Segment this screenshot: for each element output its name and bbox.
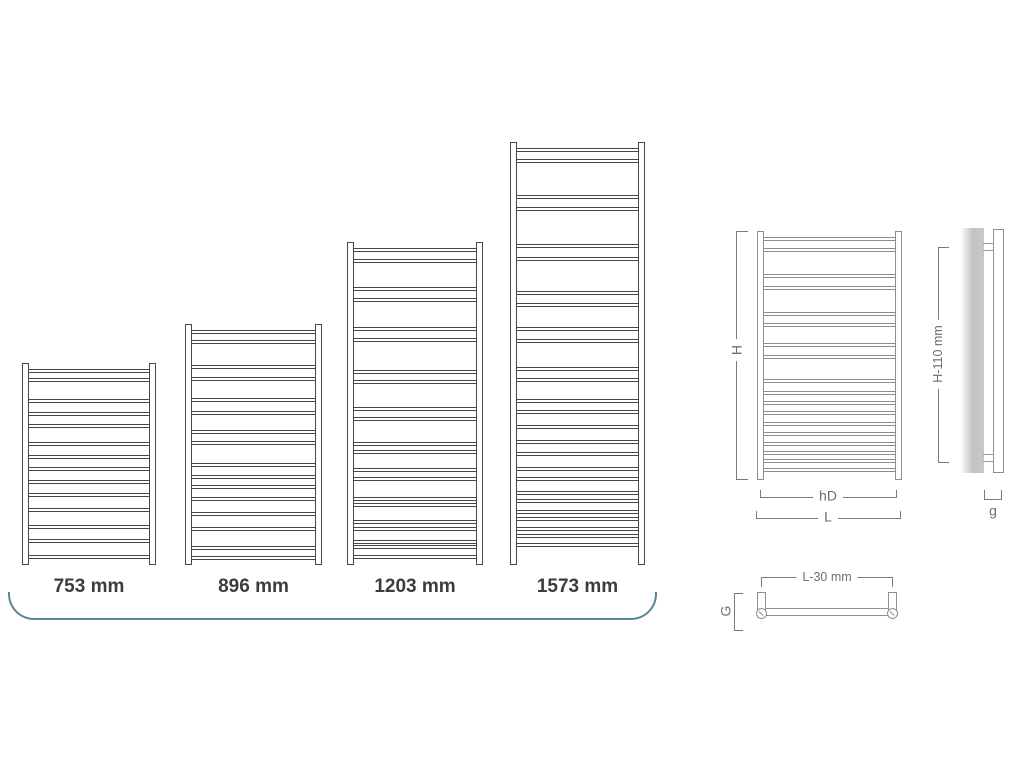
radiator-tube-right (149, 363, 156, 565)
radiator-rung (763, 411, 896, 415)
side-view-tube (993, 229, 1004, 473)
radiator-rung (516, 257, 639, 261)
radiator-rung (28, 555, 150, 559)
mounting-height-label: H-110 mm (932, 319, 946, 388)
radiator-rung (353, 248, 477, 252)
radiator-rung (516, 291, 639, 295)
radiator-rung (353, 338, 477, 342)
wall-gap-bracket (984, 490, 1002, 500)
radiator-rung (28, 378, 150, 382)
wall-bracket-bottom (983, 454, 994, 462)
radiator-rung (763, 237, 896, 241)
radiator-rung (516, 491, 639, 495)
radiator-tube-right (476, 242, 483, 565)
radiator-rung (516, 410, 639, 414)
radiator-rung (191, 556, 316, 560)
radiator-tube-left (22, 363, 29, 565)
radiator-rung (763, 459, 896, 463)
top-view-right-fitting (887, 608, 898, 619)
radiator-rung (191, 377, 316, 381)
radiator-rung (763, 391, 896, 395)
radiator-rung (763, 442, 896, 446)
radiator-rung (763, 451, 896, 455)
radiator-rung (353, 503, 477, 507)
top-view-tube (757, 608, 897, 616)
radiator-rung (516, 148, 639, 152)
radiator-rung (516, 244, 639, 248)
radiator-rung (763, 312, 896, 316)
radiator-rung (763, 432, 896, 436)
radiator-rung (516, 303, 639, 307)
radiator-rung (516, 339, 639, 343)
radiator-tube-right (638, 142, 645, 565)
radiator-rung (353, 540, 477, 544)
radiator-rung (763, 274, 896, 278)
radiator-rung (516, 159, 639, 163)
wall-surface (960, 228, 984, 473)
radiator-tube-right (315, 324, 322, 565)
radiator-rung (191, 463, 316, 467)
radiator-figure-753 (22, 363, 156, 565)
radiator-rung (516, 425, 639, 429)
radiator-rung (28, 467, 150, 471)
radiator-rung (763, 468, 896, 472)
radiator-rung (191, 330, 316, 334)
radiator-rung (191, 398, 316, 402)
radiator-rung (353, 555, 477, 559)
radiator-rung (28, 412, 150, 416)
radiator-rung (763, 401, 896, 405)
radiator-rung (28, 399, 150, 403)
width-dimension-label: L (818, 509, 838, 524)
radiator-rung (28, 525, 150, 529)
radiator-rung (516, 510, 639, 514)
radiator-rung (353, 417, 477, 421)
radiator-rung (353, 370, 477, 374)
radiator-rung (28, 455, 150, 459)
radiator-rung (353, 545, 477, 549)
hub-distance-label: hD (813, 488, 843, 503)
radiator-rung (191, 441, 316, 445)
radiator-rung (191, 475, 316, 479)
radiator-rung (191, 546, 316, 550)
radiator-tube-right (895, 231, 902, 480)
radiator-dimension-diagram: 753 mm 896 mm 1203 mm 1573 mm H hD L H-1… (0, 0, 1024, 768)
radiator-rung (28, 493, 150, 497)
radiator-figure-1203 (347, 242, 483, 565)
radiator-rung (516, 399, 639, 403)
wall-bracket-top (983, 243, 994, 251)
radiator-rung (353, 527, 477, 531)
radiator-rung (763, 248, 896, 252)
radiator-rung (516, 452, 639, 456)
radiator-rung (763, 379, 896, 383)
radiator-rung (353, 407, 477, 411)
radiator-rung (763, 323, 896, 327)
radiator-rung (516, 327, 639, 331)
radiator-rung (763, 422, 896, 426)
radiator-rung (191, 340, 316, 344)
radiator-rung (191, 512, 316, 516)
radiator-rung (353, 259, 477, 263)
radiator-rung (353, 442, 477, 446)
radiator-rung (353, 450, 477, 454)
radiator-rung (516, 543, 639, 547)
radiator-rung (353, 287, 477, 291)
radiator-rung (516, 527, 639, 531)
radiator-rung (353, 468, 477, 472)
radiator-rung (353, 327, 477, 331)
radiator-rung (353, 477, 477, 481)
radiator-rung (28, 539, 150, 543)
radiator-rung (191, 365, 316, 369)
depth-dimension-label: G (718, 600, 733, 623)
radiator-rung (191, 497, 316, 501)
top-view-left-fitting (756, 608, 767, 619)
radiator-rung (191, 411, 316, 415)
radiator-rung (353, 380, 477, 384)
radiator-rung (28, 424, 150, 428)
radiator-rung (191, 485, 316, 489)
radiator-rung (191, 430, 316, 434)
depth-dimension-bracket (734, 593, 743, 631)
radiator-rung (763, 286, 896, 290)
radiator-rung (516, 367, 639, 371)
radiator-rung (28, 442, 150, 446)
radiator-rung (516, 195, 639, 199)
radiator-rung (516, 467, 639, 471)
radiator-rung (353, 497, 477, 501)
radiator-rung (763, 343, 896, 347)
radiator-rung (516, 534, 639, 538)
radiator-rung (353, 298, 477, 302)
radiator-rung (516, 517, 639, 521)
radiator-rung (516, 378, 639, 382)
radiator-figure-1573 (510, 142, 645, 565)
radiator-rung (28, 480, 150, 484)
radiator-rung (516, 207, 639, 211)
radiator-rung (28, 508, 150, 512)
mounting-width-label: L-30 mm (796, 571, 857, 585)
radiator-rung (516, 499, 639, 503)
radiator-figure-896 (185, 324, 322, 565)
radiator-rung (516, 477, 639, 481)
radiator-rung (516, 440, 639, 444)
wall-gap-label: g (983, 503, 1003, 518)
radiator-rung (28, 369, 150, 373)
front-view-radiator (757, 231, 902, 480)
height-dimension-label: H (729, 339, 744, 361)
radiator-rung (191, 527, 316, 531)
base-accent-curve (8, 592, 657, 620)
radiator-rung (763, 355, 896, 359)
radiator-rung (353, 520, 477, 524)
